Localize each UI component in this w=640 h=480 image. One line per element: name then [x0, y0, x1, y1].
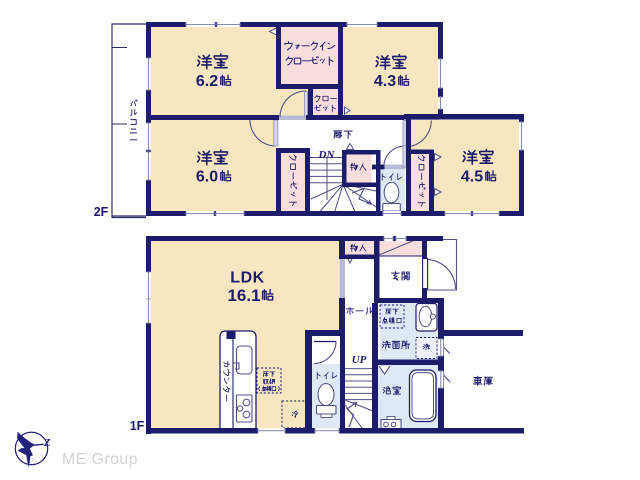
svg-text:DN: DN: [318, 149, 336, 161]
svg-text:6.0: 6.0: [196, 169, 218, 186]
svg-text:ME Group: ME Group: [62, 451, 138, 468]
svg-text:6.2: 6.2: [196, 73, 218, 90]
svg-text:Z: Z: [43, 438, 51, 449]
svg-text:4.5: 4.5: [461, 169, 483, 186]
svg-text:4.3: 4.3: [374, 73, 396, 90]
svg-text:UP: UP: [352, 354, 367, 366]
svg-text:16.1: 16.1: [227, 286, 260, 305]
svg-text:2F: 2F: [94, 205, 109, 219]
svg-text:1F: 1F: [130, 419, 145, 433]
svg-text:LDK: LDK: [230, 270, 264, 287]
